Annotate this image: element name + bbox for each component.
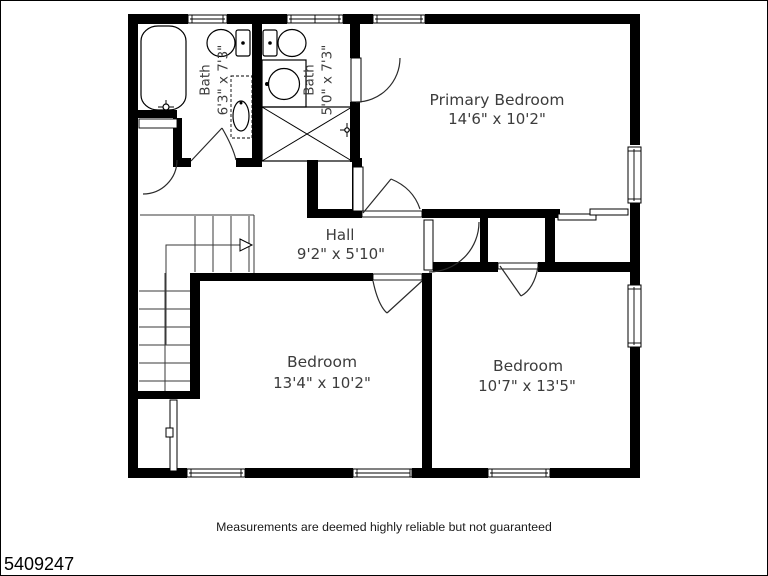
wall (550, 468, 640, 478)
door-leaf-line (500, 266, 521, 296)
wall (630, 14, 640, 145)
door-leaf-line (191, 128, 222, 161)
wall (350, 24, 360, 58)
wall (128, 14, 138, 478)
stair-direction-line (166, 245, 240, 345)
sliding-door-panel (590, 209, 628, 215)
window (373, 15, 425, 23)
wall (128, 110, 177, 118)
wall (343, 14, 373, 24)
cased-opening (139, 119, 177, 128)
room-dims: 9'2" x 5'10" (297, 245, 385, 263)
wall (252, 24, 262, 166)
room-dims: 10'7" x 13'5" (478, 377, 576, 395)
wall (422, 209, 560, 218)
floor-plan-page: Primary Bedroom 14'6" x 10'2" Hall 9'2" … (0, 0, 768, 576)
door-arc (391, 179, 420, 209)
toilet-icon (263, 30, 306, 57)
door-threshold (362, 211, 422, 217)
room-dims: 6'3" x 7'3" (216, 45, 232, 116)
window (488, 469, 550, 477)
door-arc (222, 128, 236, 160)
wall (173, 158, 191, 167)
wall (236, 158, 262, 167)
wall (422, 273, 432, 468)
door-hinge-notch (166, 428, 173, 437)
room-label: Bedroom (287, 353, 357, 371)
image-border (1, 1, 768, 576)
window (628, 285, 641, 347)
door-arc (143, 160, 177, 194)
door-leaf-line (387, 281, 422, 313)
room-dims: 13'4" x 10'2" (273, 374, 371, 392)
room-label: Hall (326, 226, 355, 244)
window (187, 469, 245, 477)
wall (193, 273, 373, 281)
listing-id: 5409247 (4, 554, 74, 574)
bathtub-icon (141, 26, 186, 110)
door-arc (521, 267, 538, 296)
wall (545, 218, 555, 262)
wall (538, 262, 640, 272)
vanity-sink-icon (262, 60, 306, 107)
sink-icon (231, 76, 252, 138)
window (353, 469, 412, 477)
wall (138, 391, 200, 399)
footer-disclaimer: Measurements are deemed highly reliable … (216, 520, 552, 534)
window (287, 15, 343, 23)
door-leaf (424, 220, 433, 270)
room-label: Primary Bedroom (430, 91, 565, 109)
wall (630, 203, 640, 285)
door-leaf-line (363, 179, 391, 213)
wall (425, 14, 640, 24)
window (188, 15, 227, 23)
door-arc (373, 281, 387, 313)
window (628, 147, 641, 203)
wall (245, 468, 353, 478)
wall (412, 468, 488, 478)
door-leaf (351, 58, 361, 102)
wall (190, 273, 200, 399)
wall (227, 14, 287, 24)
stair-direction-arrow (240, 239, 252, 251)
floor-plan-canvas: Primary Bedroom 14'6" x 10'2" Hall 9'2" … (0, 0, 768, 576)
room-label: Bath (198, 64, 214, 95)
room-label: Bath (302, 64, 318, 95)
room-label: Bedroom (493, 357, 563, 375)
room-dims: 14'6" x 10'2" (448, 110, 546, 128)
door-threshold (498, 263, 538, 269)
door-threshold (373, 274, 422, 280)
door-arc (356, 58, 400, 102)
wall (630, 347, 640, 468)
shower-closet-x (262, 107, 352, 161)
wall (128, 468, 187, 478)
door-leaf (353, 167, 363, 211)
room-dims: 5'0" x 7'3" (320, 45, 336, 116)
wall (480, 218, 488, 262)
